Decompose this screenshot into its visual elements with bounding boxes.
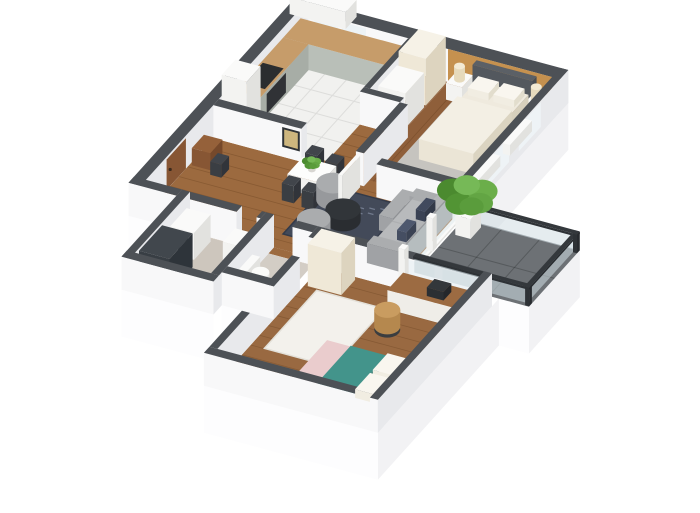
balcony-plant-pot-face-sw [455, 215, 470, 239]
door-entry-handle [169, 168, 172, 171]
railing-post-e-face-se [577, 232, 580, 254]
bedroom2-wardrobe [308, 229, 355, 296]
master-lamp-right-top [531, 83, 542, 90]
desk-chair [374, 302, 400, 335]
railing-post-e [573, 231, 580, 254]
floorplan-render [0, 0, 700, 513]
wall-bedroom2-east-face-sw [370, 398, 378, 433]
coffee-table [325, 198, 360, 231]
master-lamp-left-top [454, 63, 465, 70]
balcony-door-post-2-face-se [433, 214, 437, 251]
balcony-door-post-2 [426, 213, 436, 252]
balcony-plant-leaf [454, 175, 480, 195]
desk-chair-top [374, 302, 400, 318]
door-entry-handle-disc [169, 168, 172, 171]
wall-bath-south-face-se [214, 275, 220, 314]
dining-plant-leaf [309, 163, 317, 169]
floorplan-svg [0, 0, 700, 513]
dining-plant-leaf [307, 156, 315, 162]
master-window-sill-1-face-sw [503, 143, 510, 156]
railing-post-e-face-sw [573, 234, 577, 254]
dining-chair-4-face-sw [302, 190, 314, 210]
dining-chair-3-face-sw [282, 183, 294, 203]
plinth-face [499, 299, 529, 354]
railing-post-se-face-sw [525, 287, 529, 307]
railing-post-se-face-se [529, 285, 532, 307]
balcony-door-post-2-face-sw [426, 217, 432, 252]
master-lamp-left [454, 63, 465, 83]
balcony-plant-leaf [459, 197, 483, 215]
railing-post-se [525, 284, 532, 307]
wall-wc-south-face-se [274, 280, 280, 319]
coffee-table-top [325, 198, 360, 220]
